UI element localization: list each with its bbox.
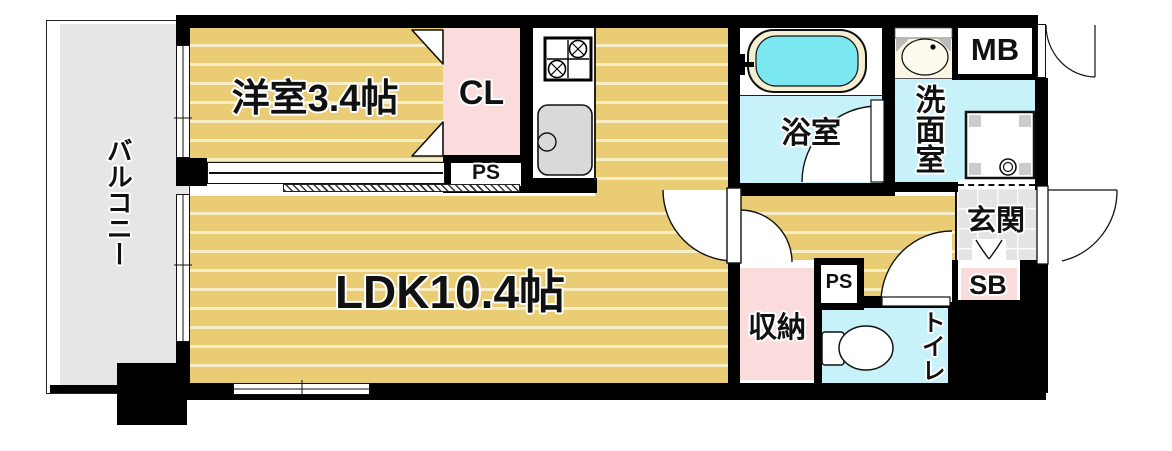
washing-machine-icon — [966, 112, 1034, 178]
storage-label: 収納 — [734, 313, 820, 343]
shoe-box-label: SB — [953, 271, 1023, 299]
western-room-label: 洋室3.4帖 — [195, 80, 435, 120]
entrance-door-icon — [1037, 186, 1117, 264]
meter-box-label: MB — [952, 34, 1038, 67]
meter-box-door-icon — [1046, 25, 1095, 77]
ldk-door-icon — [663, 188, 792, 263]
vanity-sink-icon — [895, 28, 952, 75]
bathroom-label: 浴室 — [740, 118, 882, 150]
entrance-label: 玄関 — [955, 206, 1037, 236]
floor-plan: バルコニー 洋室3.4帖 CL PS LDK10.4帖 浴室 洗面室 MB 玄関… — [0, 0, 1172, 451]
kitchen-sink-icon — [538, 105, 592, 175]
bathtub-icon — [736, 30, 866, 92]
toilet-label: トイレ — [918, 310, 943, 382]
toilet-icon — [822, 326, 893, 370]
pipe-space-lower-label: PS — [821, 272, 857, 293]
entrance-step-icon — [972, 239, 1006, 262]
pipe-space-upper-label: PS — [451, 162, 521, 184]
toilet-door-icon — [881, 231, 952, 306]
stove-icon — [545, 38, 591, 80]
ldk-label: LDK10.4帖 — [190, 268, 710, 316]
closet-label: CL — [443, 76, 520, 112]
balcony-label: バルコニー — [104, 137, 131, 267]
washroom-label: 洗面室 — [911, 84, 943, 174]
